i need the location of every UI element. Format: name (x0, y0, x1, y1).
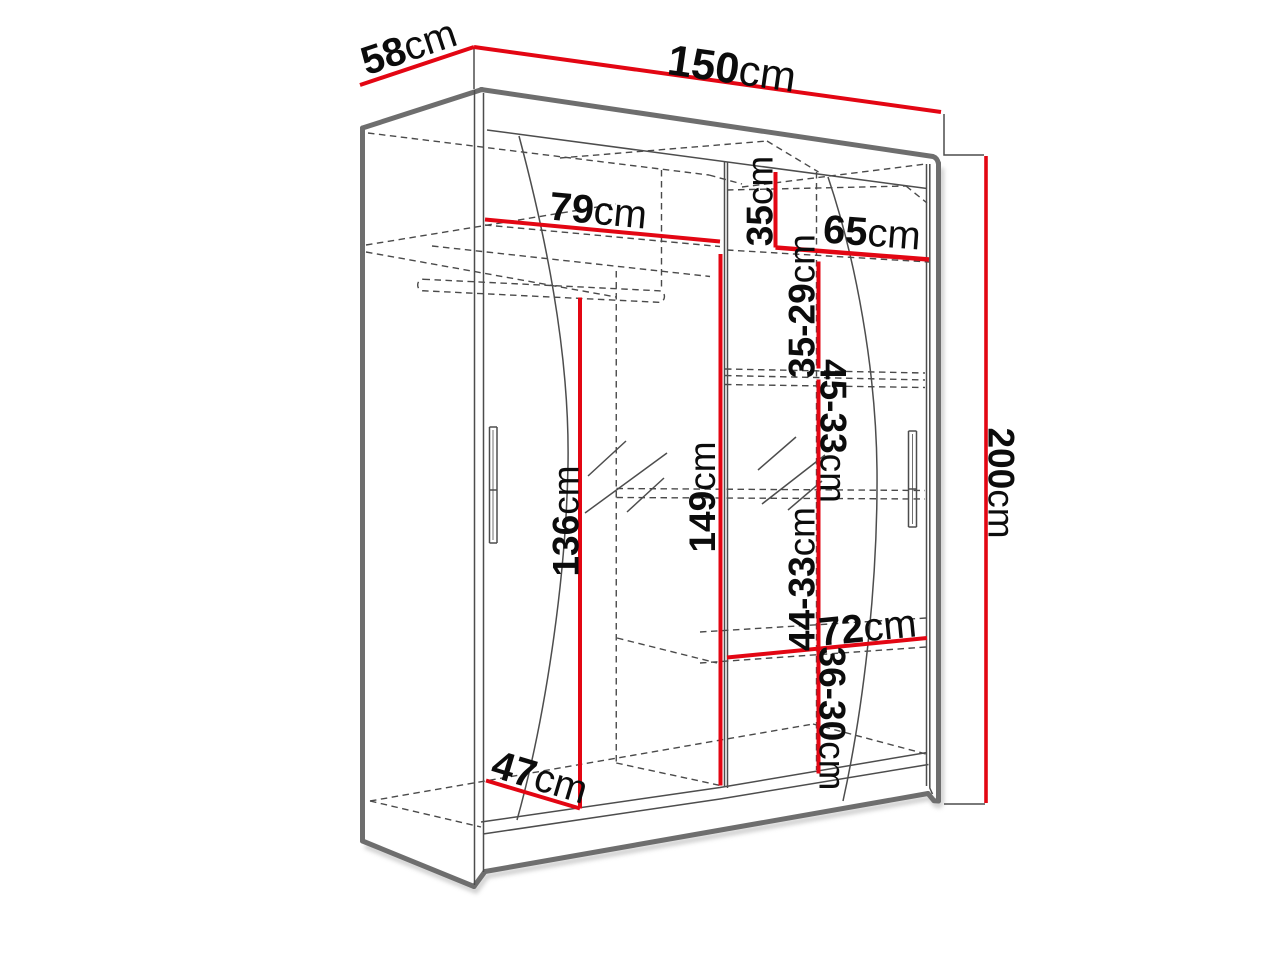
svg-text:149cm: 149cm (682, 441, 723, 552)
svg-text:36-30cm: 36-30cm (812, 647, 853, 791)
svg-text:35cm: 35cm (740, 156, 781, 246)
svg-text:45-33cm: 45-33cm (813, 359, 854, 503)
svg-text:65cm: 65cm (822, 207, 923, 258)
svg-text:200cm: 200cm (981, 427, 1022, 538)
svg-text:79cm: 79cm (547, 185, 649, 238)
svg-text:44-33cm: 44-33cm (782, 507, 823, 651)
svg-text:35-29cm: 35-29cm (782, 234, 823, 378)
svg-text:136cm: 136cm (546, 465, 587, 576)
